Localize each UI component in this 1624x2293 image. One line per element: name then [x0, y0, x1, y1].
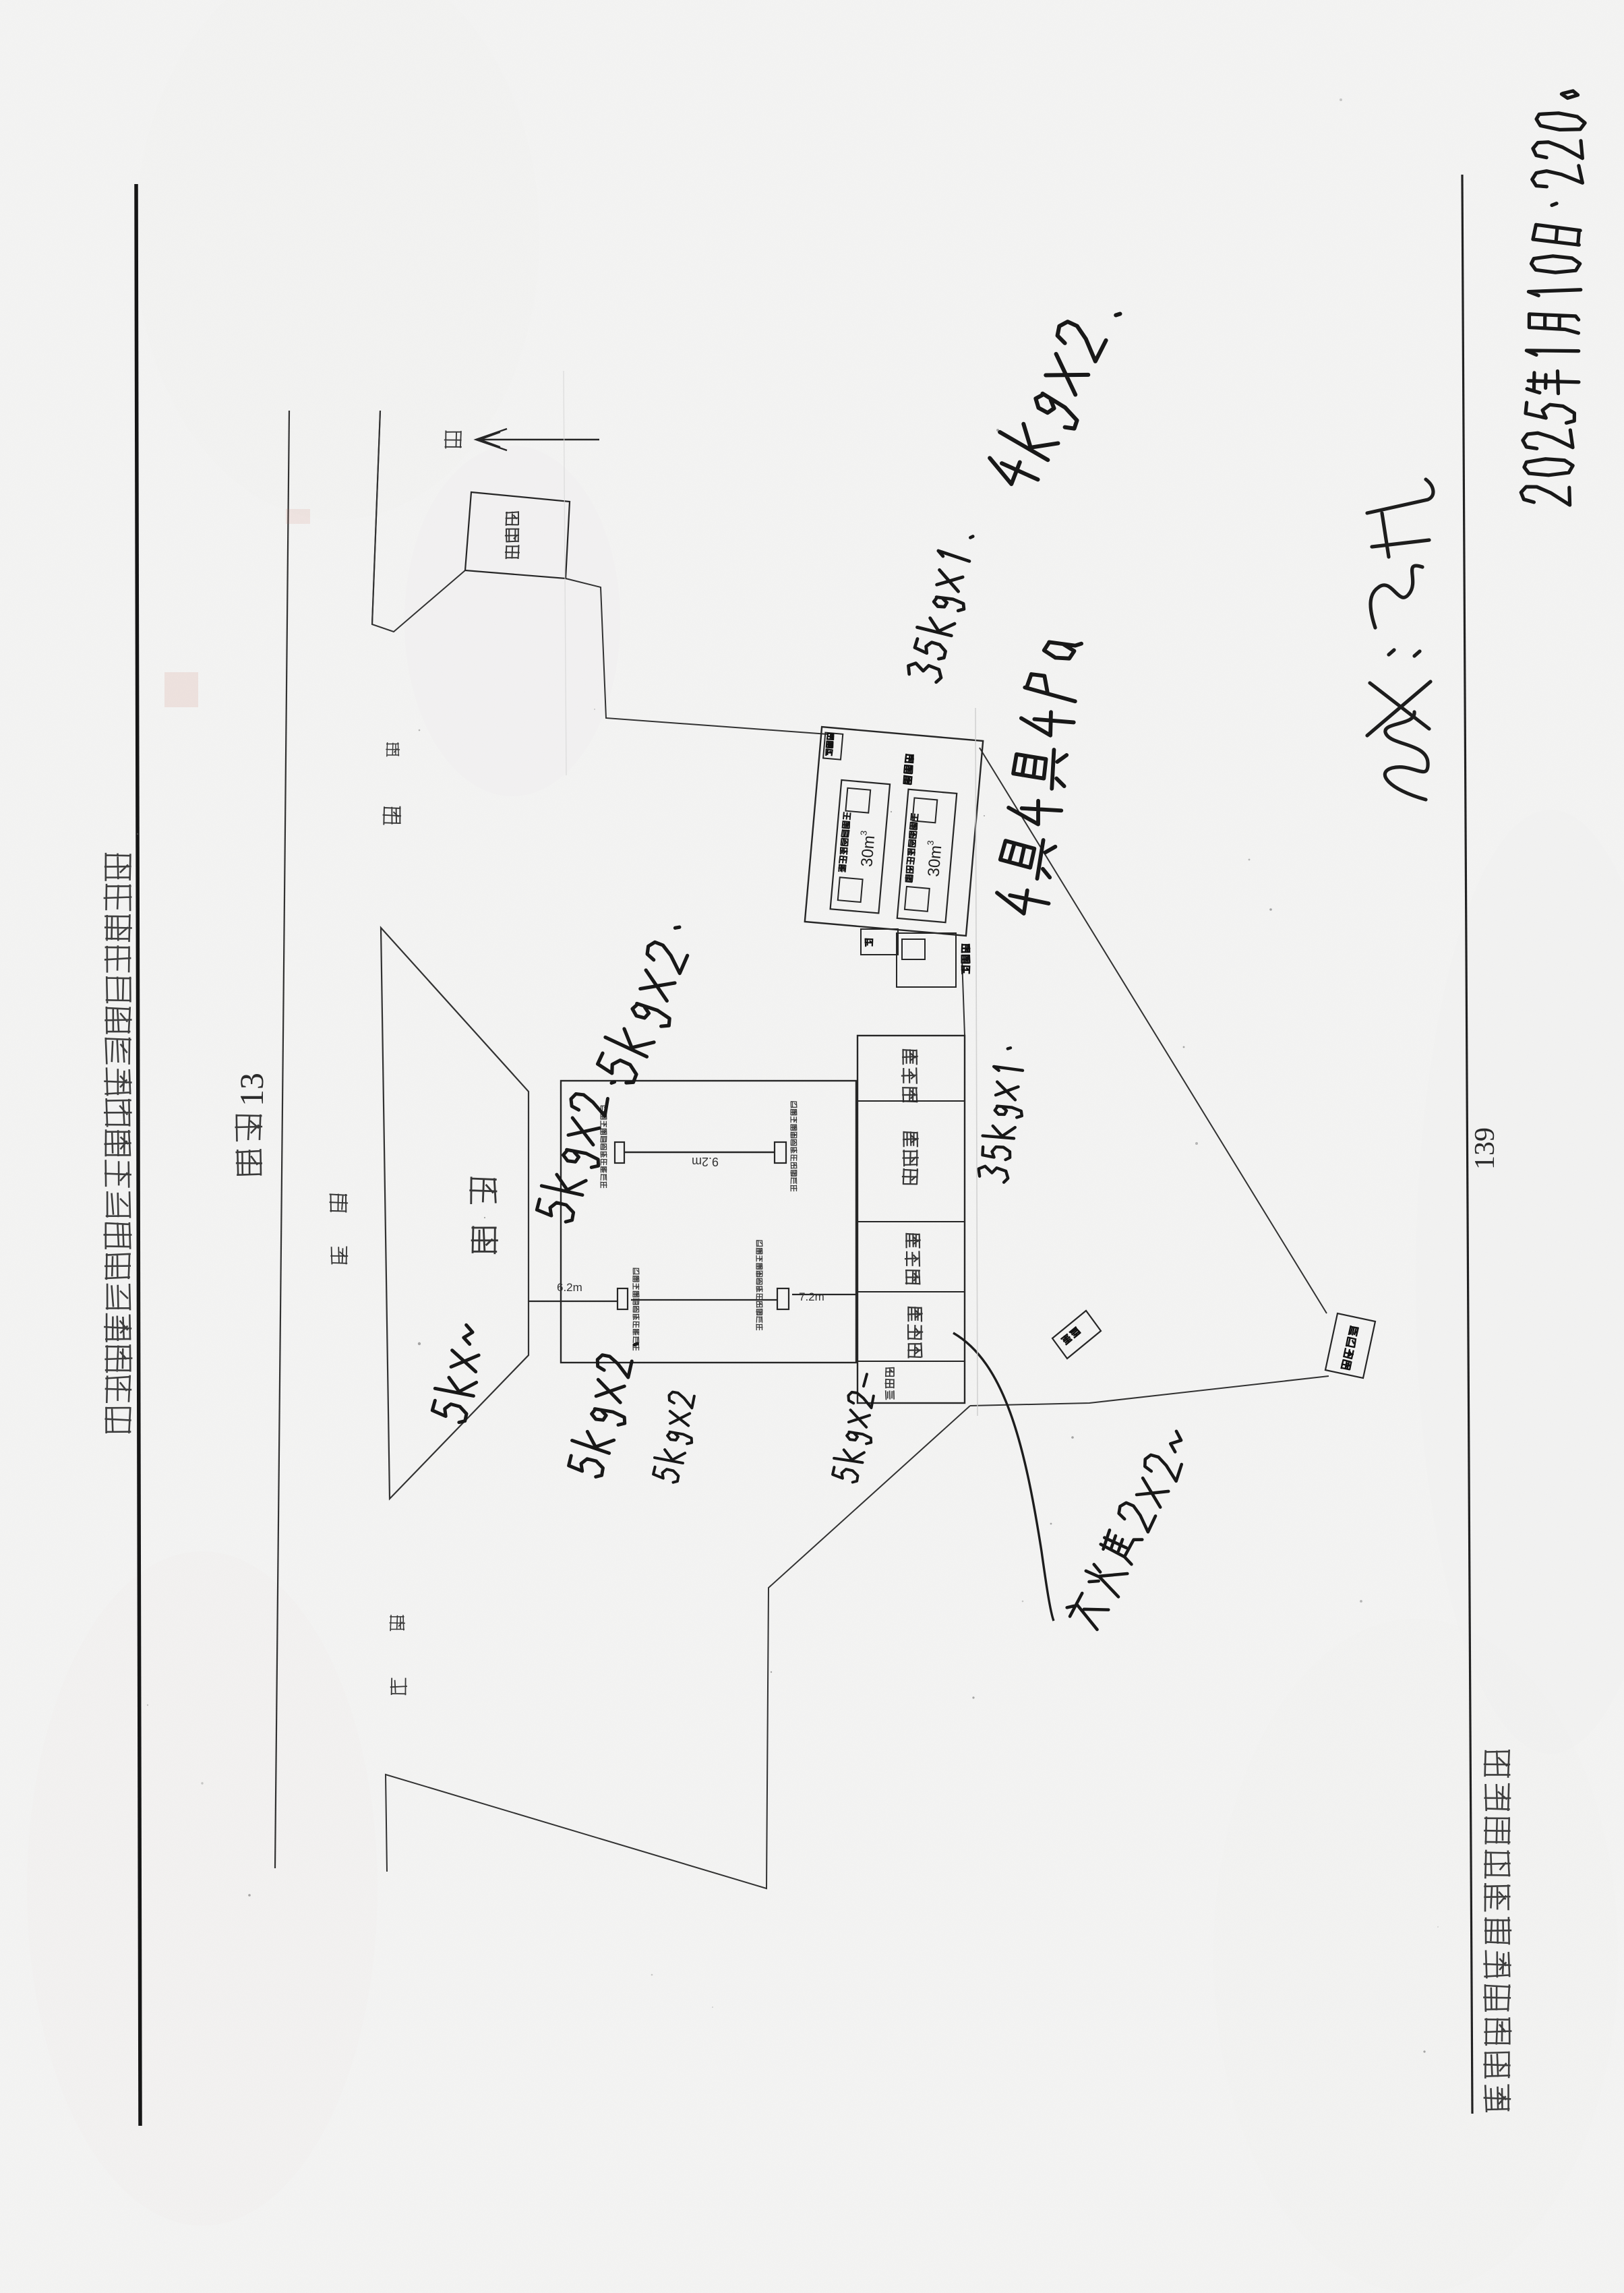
svg-text:3: 3	[858, 830, 869, 836]
svg-text:139: 139	[1470, 1127, 1501, 1170]
svg-text:13: 13	[233, 1073, 270, 1106]
svg-text:7.2m: 7.2m	[799, 1290, 824, 1303]
svg-text:30m: 30m	[924, 845, 945, 878]
svg-text:30m: 30m	[858, 835, 878, 868]
svg-text:9.2m: 9.2m	[692, 1155, 719, 1168]
svg-text:3: 3	[925, 840, 936, 846]
svg-text:6.2m: 6.2m	[557, 1281, 582, 1294]
